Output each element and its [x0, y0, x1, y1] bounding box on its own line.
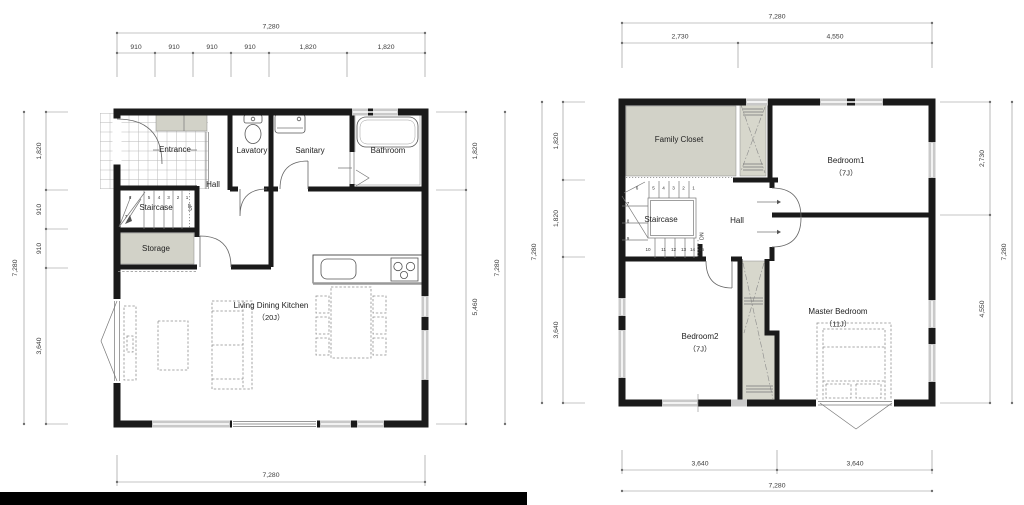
stair-number: 1 — [186, 195, 189, 200]
coffee-table — [158, 321, 188, 370]
stair-number: 7 — [627, 201, 630, 206]
dim-f1-left-seg: 3,640 — [36, 337, 43, 354]
dim-f2-top-seg: 4,550 — [826, 34, 843, 41]
dim-f2-top-seg: 2,730 — [671, 34, 688, 41]
floorplan-canvas: 7,280 910 910 910 910 1,820 1,820 7,280 … — [0, 0, 1024, 505]
stair-number: 6 — [129, 195, 132, 200]
stair-number: 2 — [682, 186, 685, 191]
room-label-ldk: Living Dining Kitchen — [234, 301, 309, 310]
room-size-ldk: （20J） — [257, 313, 284, 322]
dim-f1-top-seg: 910 — [206, 44, 218, 51]
room-label-hall-f1: Hall — [206, 180, 220, 189]
room-label-entrance: Entrance — [159, 145, 192, 154]
floor2-plan: 7,280 2,730 4,550 7,280 1,820 1,820 3,64… — [531, 14, 1012, 492]
bottom-black-bar — [0, 492, 527, 505]
dim-f2-bottom-seg: 3,640 — [846, 461, 863, 468]
dim-f2-top-total: 7,280 — [768, 14, 785, 21]
dim-f2-bottom-total: 7,280 — [768, 483, 785, 490]
shoe-cabinet — [156, 114, 207, 131]
stair-number: 10 — [645, 247, 651, 252]
stair-number: 1 — [692, 186, 695, 191]
stair-number: 2 — [177, 195, 180, 200]
room-label-sanitary: Sanitary — [295, 146, 324, 155]
stair-number: 12 — [671, 247, 677, 252]
stair-number: 5 — [652, 186, 655, 191]
dim-f1-right-seg: 5,460 — [472, 298, 479, 315]
stair-number: 5 — [148, 195, 151, 200]
room-label-staircase-f1: Staircase — [139, 203, 173, 212]
bathroom-sliding-door — [338, 152, 356, 184]
stair-number: 3 — [167, 195, 170, 200]
dim-f2-right-seg: 2,730 — [979, 150, 986, 167]
dim-f1-top-total: 7,280 — [262, 24, 279, 31]
dim-f1-top-seg: 910 — [244, 44, 256, 51]
dim-f2-right-total: 7,280 — [1001, 243, 1008, 260]
washbasin-fixture — [275, 114, 305, 133]
dim-f2-left-seg: 1,820 — [553, 132, 560, 149]
dim-f1-left-seg: 910 — [36, 243, 43, 255]
stair-number: 4 — [662, 186, 665, 191]
kitchen-counter — [313, 255, 424, 284]
dim-f1-left-seg: 910 — [36, 204, 43, 216]
stair-number: 6 — [636, 186, 639, 191]
dim-f2-left-total: 7,280 — [531, 243, 538, 260]
dim-f1-top-seg: 1,820 — [299, 44, 316, 51]
stair-number: 14 — [690, 247, 696, 252]
room-size-master-bedroom: （11J） — [825, 320, 852, 329]
floor1-plan: 7,280 910 910 910 910 1,820 1,820 7,280 … — [12, 24, 505, 487]
toilet-fixture — [244, 115, 262, 144]
dim-f1-top-seg: 1,820 — [377, 44, 394, 51]
dim-f1-bottom-total: 7,280 — [262, 472, 279, 479]
room-label-master-bedroom: Master Bedroom — [808, 307, 867, 316]
stair-up-label: UP — [188, 203, 194, 211]
stair-dn-label: DN — [700, 232, 706, 240]
dim-f2-bottom-seg: 3,640 — [691, 461, 708, 468]
room-size-bedroom1: （7J） — [835, 169, 858, 178]
dining-set — [316, 287, 386, 358]
stair-number: 9 — [627, 236, 630, 241]
dim-f1-right-seg: 1,820 — [472, 142, 479, 159]
room-label-storage: Storage — [142, 244, 171, 253]
stair-number: 7 — [125, 214, 128, 219]
floor1-dimensions — [24, 33, 505, 486]
dim-f1-top-seg: 910 — [168, 44, 180, 51]
tv-stand — [124, 306, 136, 380]
dim-f1-left-seg: 1,820 — [36, 142, 43, 159]
stair-number: 15 — [699, 247, 705, 252]
room-size-bedroom2: （7J） — [689, 345, 712, 354]
stair-number: 8 — [627, 219, 630, 224]
dim-f1-left-total: 7,280 — [12, 259, 19, 276]
stair-number: 4 — [158, 195, 161, 200]
room-label-staircase-f2: Staircase — [644, 215, 678, 224]
room-label-hall-f2: Hall — [730, 216, 744, 225]
dim-f2-left-seg: 1,820 — [553, 210, 560, 227]
room-label-bedroom2: Bedroom2 — [682, 332, 719, 341]
room-label-family-closet: Family Closet — [655, 135, 704, 144]
stair-number: 11 — [661, 247, 666, 252]
sofa — [212, 301, 252, 389]
dim-f2-left-seg: 3,640 — [553, 321, 560, 338]
stair-number: 3 — [672, 186, 675, 191]
room-label-bedroom1: Bedroom1 — [828, 156, 865, 165]
floorplan-drawing: 7,280 910 910 910 910 1,820 1,820 7,280 … — [0, 0, 1024, 505]
room-label-lavatory: Lavatory — [237, 146, 268, 155]
master-bed — [817, 323, 891, 401]
floor2-dimensions — [542, 23, 1012, 491]
dim-f2-right-seg: 4,550 — [979, 300, 986, 317]
stair-number: 13 — [681, 247, 687, 252]
dim-f1-right-total: 7,280 — [494, 259, 501, 276]
room-label-bathroom: Bathroom — [371, 146, 406, 155]
dim-f1-top-seg: 910 — [130, 44, 142, 51]
